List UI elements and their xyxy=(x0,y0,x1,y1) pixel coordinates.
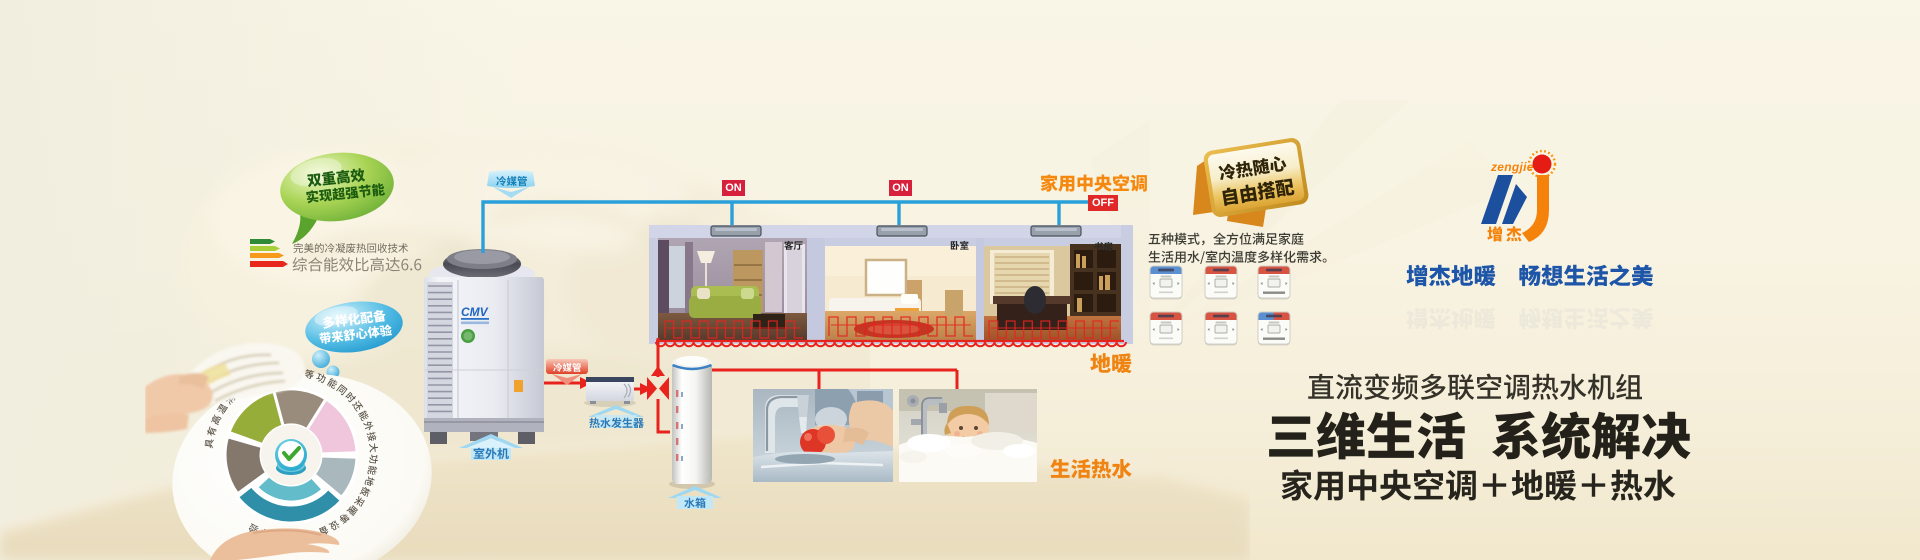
svg-text:zengjie: zengjie xyxy=(1490,160,1534,174)
